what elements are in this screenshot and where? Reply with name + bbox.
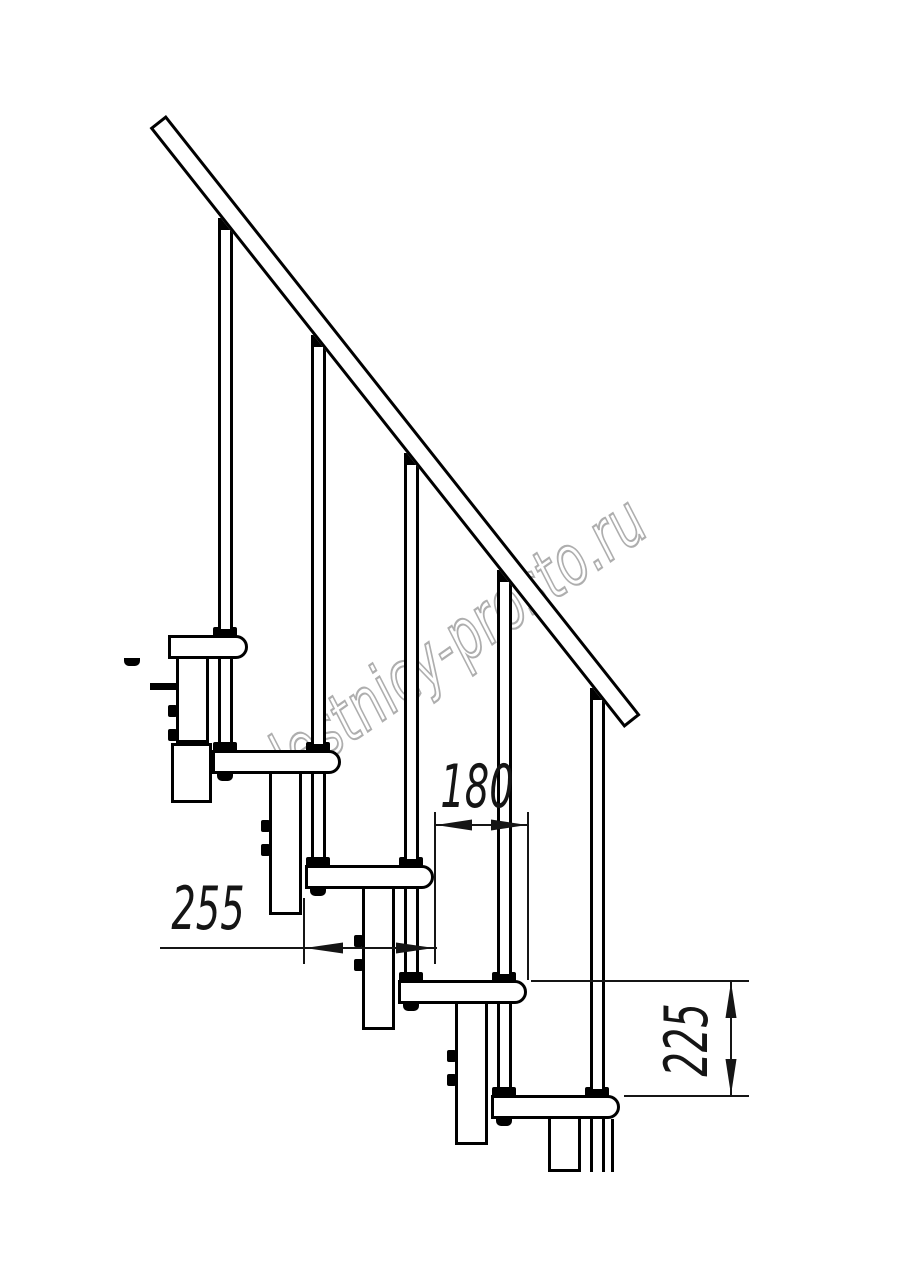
clamp-lug [447, 1050, 456, 1062]
support-column [548, 1115, 581, 1172]
baluster-rod-lower [218, 655, 233, 753]
dim-255-arrow-left [305, 942, 343, 954]
dim-shared-ext [434, 812, 436, 964]
technical-drawing-canvas: lestnicy-prosto.ru 255 180 225 [0, 0, 914, 1280]
baluster-collar [492, 1087, 516, 1097]
tread [398, 980, 527, 1004]
cut-line [611, 1119, 614, 1172]
baluster-rod-lower [311, 770, 326, 868]
dim-180-ext-right [527, 812, 529, 980]
dim-225-arrow-up [725, 982, 737, 1018]
baluster-collar [399, 972, 423, 982]
dim-255-line [160, 947, 437, 949]
tread [305, 865, 434, 889]
dim-180-label: 180 [440, 757, 513, 817]
baluster-rod-lower [404, 885, 419, 983]
tread [212, 750, 341, 774]
bolt-nub [217, 773, 233, 781]
bolt-nub [124, 658, 140, 666]
baluster-collar [213, 742, 237, 752]
clamp-lug [261, 820, 270, 832]
clamp-lug [168, 729, 177, 741]
support-column [176, 655, 209, 743]
baluster-collar [306, 857, 330, 867]
dim-225-label: 225 [657, 1003, 717, 1076]
support-column [455, 1000, 488, 1145]
dim-225-arrow-down [725, 1059, 737, 1095]
baluster-rod [404, 457, 419, 859]
tread [491, 1095, 620, 1119]
clamp-lug [168, 705, 177, 717]
clamp-lug [354, 959, 363, 971]
cut-bolt-stub [150, 683, 178, 690]
baluster-rod [311, 339, 326, 744]
baluster-rod-lower [590, 1115, 605, 1172]
dim-225-ext-top [531, 980, 749, 982]
dim-255-ext-left [303, 898, 305, 964]
clamp-lug [261, 844, 270, 856]
baluster-rod [590, 692, 605, 1089]
bolt-nub [310, 888, 326, 896]
tread [168, 635, 248, 659]
baluster-rod-lower [497, 1000, 512, 1098]
column-foot [171, 743, 212, 803]
clamp-lug [447, 1074, 456, 1086]
dim-255-label: 255 [171, 879, 244, 939]
clamp-lug [354, 935, 363, 947]
support-column [362, 885, 395, 1030]
bolt-nub [403, 1003, 419, 1011]
bolt-nub [496, 1118, 512, 1126]
support-column [269, 770, 302, 915]
baluster-rod [218, 222, 233, 629]
